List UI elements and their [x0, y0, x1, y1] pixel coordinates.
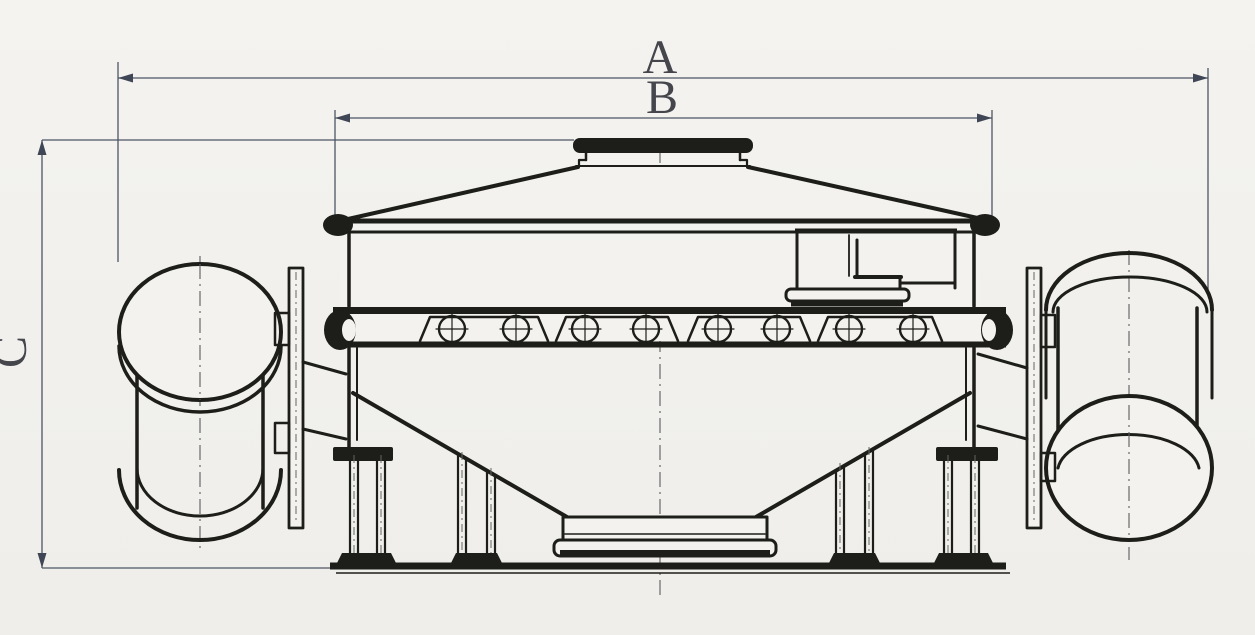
band-cap-left-hole	[342, 319, 356, 341]
discharge-outlet	[554, 517, 776, 556]
drawing-sheet: A B C	[0, 0, 1255, 635]
inlet-neck-sides	[586, 153, 740, 160]
clamp-band	[324, 310, 1013, 350]
machine	[119, 138, 1212, 600]
dome-fill	[348, 166, 982, 218]
leg-inner-right	[828, 447, 881, 565]
motor-right	[1046, 250, 1212, 560]
motor-left-link-upper	[303, 362, 346, 374]
dim-b-label: B	[646, 71, 678, 124]
leg2-posts	[458, 454, 495, 554]
leg-inner-left	[450, 452, 503, 565]
motor-right-cap-sides	[1046, 310, 1212, 398]
motor-left-link-lower	[303, 429, 346, 439]
motor-right-clamp-upper	[1041, 315, 1055, 347]
motor-right-link-lower	[978, 426, 1027, 439]
band-cap-right-hole	[982, 319, 996, 341]
dim-b-arrow-right	[977, 114, 992, 123]
dim-b-arrow-left	[335, 114, 350, 123]
leg3-posts	[836, 449, 873, 554]
ground	[330, 566, 1010, 573]
motor-left	[119, 256, 281, 552]
motor-right-cap-inner-arc	[1053, 277, 1207, 312]
leg4-posts	[944, 461, 979, 554]
cone-hopper	[349, 348, 974, 517]
motor-left-clamp-lower	[275, 423, 289, 453]
leg-outer-left	[333, 447, 397, 565]
inlet-flange	[573, 138, 753, 153]
dim-c-arrow-top	[38, 140, 47, 155]
lid-and-inlet	[348, 138, 982, 219]
dim-c-label: C	[0, 336, 37, 368]
tumbler-screen-drawing: A B C	[0, 0, 1255, 635]
leg1-posts	[350, 461, 385, 554]
leg-outer-right	[933, 447, 998, 565]
dim-c-arrow-bottom	[38, 553, 47, 568]
dim-a-arrow-left	[118, 74, 133, 83]
box-flange	[786, 289, 909, 301]
dim-a-arrow-right	[1193, 74, 1208, 83]
motor-right-link-upper	[978, 354, 1027, 368]
leg1-bracket	[333, 447, 393, 461]
discharge-neck	[563, 517, 767, 540]
leg4-bracket	[936, 447, 998, 461]
